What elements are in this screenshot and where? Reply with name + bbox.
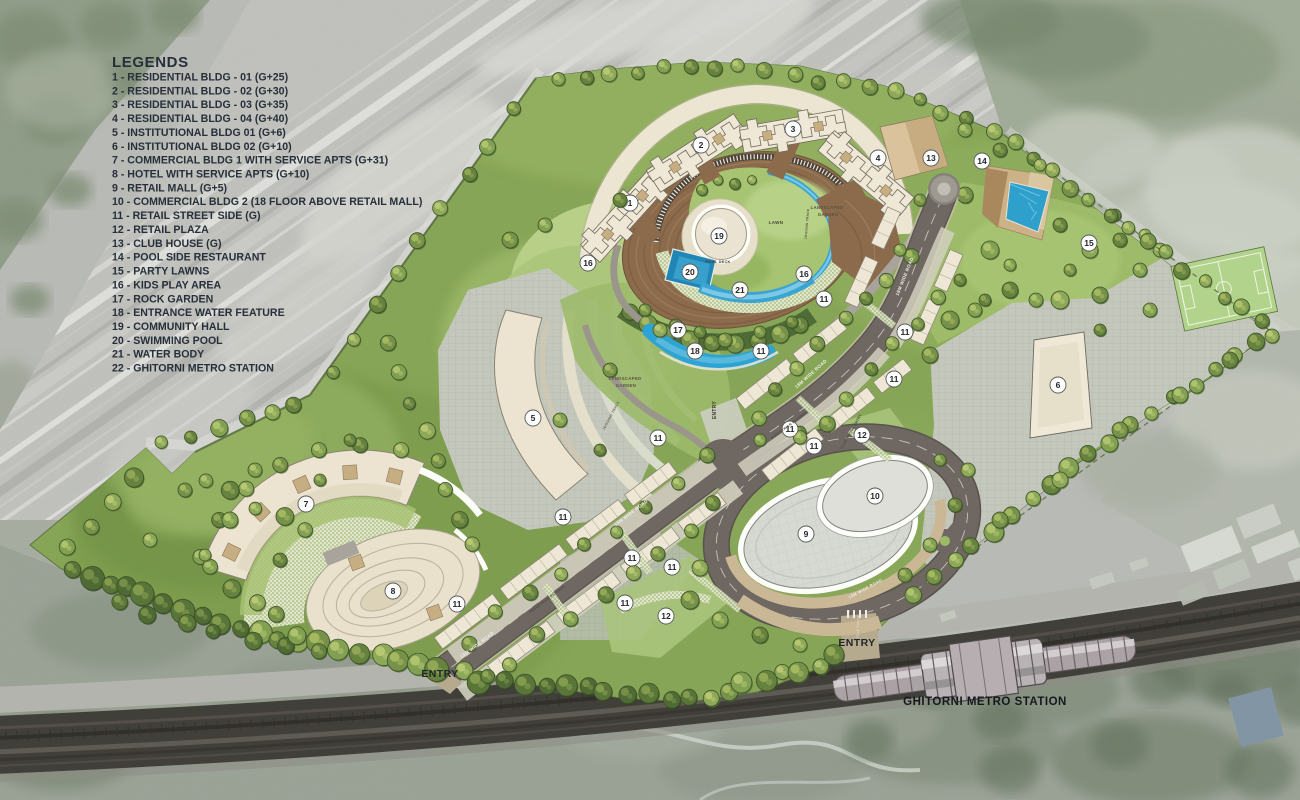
svg-text:12: 12 — [857, 430, 867, 440]
svg-text:6: 6 — [1056, 380, 1061, 390]
svg-text:LANDSCAPED: LANDSCAPED — [609, 376, 642, 381]
svg-text:21: 21 — [735, 285, 745, 295]
svg-text:8 - HOTEL WITH SERVICE APTS (G: 8 - HOTEL WITH SERVICE APTS (G+10) — [112, 169, 309, 181]
svg-text:12: 12 — [661, 611, 671, 621]
svg-text:11: 11 — [757, 346, 766, 356]
svg-text:3 - RESIDENTIAL BLDG - 03 (G+3: 3 - RESIDENTIAL BLDG - 03 (G+35) — [112, 99, 288, 111]
svg-text:11: 11 — [668, 562, 677, 572]
svg-text:2: 2 — [699, 140, 704, 150]
svg-text:9 - RETAIL MALL (G+5): 9 - RETAIL MALL (G+5) — [112, 182, 227, 194]
svg-text:16: 16 — [583, 258, 593, 268]
svg-text:7: 7 — [304, 499, 309, 509]
svg-text:13: 13 — [926, 153, 936, 163]
svg-text:17 - ROCK GARDEN: 17 - ROCK GARDEN — [112, 293, 213, 305]
svg-text:19 - COMMUNITY HALL: 19 - COMMUNITY HALL — [112, 321, 230, 333]
svg-text:POOL DECK: POOL DECK — [705, 260, 730, 264]
svg-text:10 - COMMERCIAL BLDG 2 (18 FLO: 10 - COMMERCIAL BLDG 2 (18 FLOOR ABOVE R… — [112, 196, 422, 208]
svg-text:5: 5 — [531, 413, 536, 423]
svg-text:ENTRY: ENTRY — [712, 401, 718, 420]
svg-text:19: 19 — [714, 231, 724, 241]
svg-text:10: 10 — [870, 491, 880, 501]
svg-text:LEGENDS: LEGENDS — [112, 54, 189, 71]
svg-text:1: 1 — [628, 198, 633, 208]
svg-text:11: 11 — [901, 327, 910, 337]
svg-text:2 - RESIDENTIAL BLDG - 02 (G+3: 2 - RESIDENTIAL BLDG - 02 (G+30) — [112, 85, 288, 97]
svg-text:16: 16 — [799, 269, 809, 279]
svg-text:11: 11 — [890, 374, 899, 384]
svg-text:GARDEN: GARDEN — [818, 212, 838, 217]
svg-text:13 - CLUB HOUSE (G): 13 - CLUB HOUSE (G) — [112, 238, 221, 250]
svg-text:15: 15 — [1084, 238, 1094, 248]
svg-text:5 - INSTITUTIONAL BLDG 01 (G+6: 5 - INSTITUTIONAL BLDG 01 (G+6) — [112, 127, 286, 139]
svg-text:15 - PARTY LAWNS: 15 - PARTY LAWNS — [112, 266, 209, 278]
svg-text:11 - RETAIL STREET SIDE (G): 11 - RETAIL STREET SIDE (G) — [112, 210, 261, 222]
svg-text:18: 18 — [690, 346, 700, 356]
svg-text:LAWN: LAWN — [769, 220, 784, 225]
svg-text:16 - KIDS PLAY AREA: 16 - KIDS PLAY AREA — [112, 279, 221, 291]
svg-text:9: 9 — [804, 529, 809, 539]
svg-text:GHITORNI METRO STATION: GHITORNI METRO STATION — [903, 696, 1067, 708]
svg-text:14 - POOL SIDE RESTAURANT: 14 - POOL SIDE RESTAURANT — [112, 252, 266, 264]
svg-text:11: 11 — [654, 433, 663, 443]
svg-text:4: 4 — [876, 153, 881, 163]
svg-text:22 - GHITORNI METRO STATION: 22 - GHITORNI METRO STATION — [112, 363, 274, 375]
svg-text:6 - INSTITUTIONAL BLDG 02 (G+1: 6 - INSTITUTIONAL BLDG 02 (G+10) — [112, 141, 292, 153]
svg-text:11: 11 — [453, 599, 462, 609]
svg-text:11: 11 — [559, 512, 568, 522]
svg-text:4 - RESIDENTIAL BLDG - 04 (G+4: 4 - RESIDENTIAL BLDG - 04 (G+40) — [112, 113, 288, 125]
svg-text:11: 11 — [628, 553, 637, 563]
svg-text:11: 11 — [810, 441, 819, 451]
svg-text:17: 17 — [673, 325, 683, 335]
svg-text:14: 14 — [977, 156, 987, 166]
svg-text:11: 11 — [621, 598, 630, 608]
svg-text:1 - RESIDENTIAL BLDG - 01 (G+2: 1 - RESIDENTIAL BLDG - 01 (G+25) — [112, 72, 288, 84]
svg-text:GARDEN: GARDEN — [616, 383, 636, 388]
svg-text:18 - ENTRANCE WATER FEATURE: 18 - ENTRANCE WATER FEATURE — [112, 307, 285, 319]
svg-text:20 - SWIMMING POOL: 20 - SWIMMING POOL — [112, 335, 223, 347]
svg-text:8: 8 — [391, 586, 396, 596]
svg-text:12 - RETAIL PLAZA: 12 - RETAIL PLAZA — [112, 224, 209, 236]
svg-text:ENTRY: ENTRY — [838, 637, 875, 649]
svg-text:11: 11 — [820, 294, 829, 304]
svg-text:3: 3 — [791, 124, 796, 134]
svg-text:ENTRY: ENTRY — [421, 668, 458, 680]
svg-text:LANDSCAPED: LANDSCAPED — [811, 205, 844, 210]
svg-text:20: 20 — [685, 267, 695, 277]
svg-text:7 - COMMERCIAL BLDG 1 WITH SER: 7 - COMMERCIAL BLDG 1 WITH SERVICE APTS … — [112, 155, 388, 167]
svg-text:21 - WATER BODY: 21 - WATER BODY — [112, 349, 204, 361]
